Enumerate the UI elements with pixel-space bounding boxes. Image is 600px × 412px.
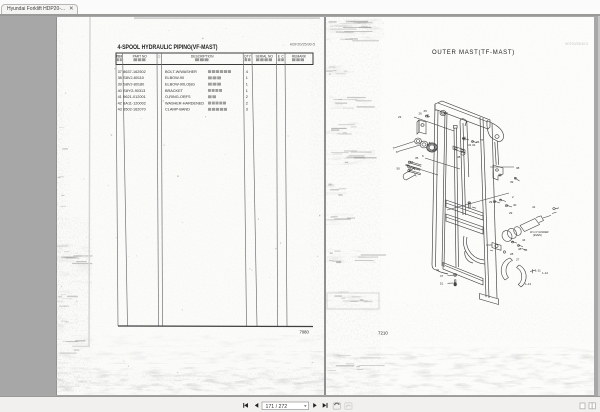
- svg-text:41: 41: [118, 95, 122, 99]
- svg-text:2: 2: [246, 95, 248, 99]
- svg-text:BOLT-W/WASHER: BOLT-W/WASHER: [165, 70, 197, 74]
- svg-text:28: 28: [510, 252, 514, 256]
- svg-text:7210: 7210: [378, 331, 388, 336]
- svg-text:EC: EC: [278, 55, 285, 59]
- svg-text:29: 29: [509, 211, 513, 215]
- svg-text:37: 37: [480, 138, 484, 142]
- svg-text:29: 29: [489, 200, 493, 204]
- svg-text:25: 25: [424, 109, 428, 113]
- svg-text:S8VJ-80110: S8VJ-80110: [123, 76, 144, 80]
- svg-text:1-12: 1-12: [542, 271, 548, 275]
- svg-text:43: 43: [118, 108, 122, 112]
- svg-text:ELBOW-90: ELBOW-90: [165, 76, 184, 80]
- svg-text:1: 1: [246, 76, 248, 80]
- svg-text:BRACKET: BRACKET: [165, 89, 184, 93]
- svg-text:33: 33: [408, 167, 412, 171]
- svg-text:3: 3: [246, 108, 248, 112]
- svg-text:S8YG-90313: S8YG-90313: [123, 89, 145, 93]
- svg-text:1-11: 1-11: [535, 269, 541, 273]
- svg-text:41: 41: [532, 205, 536, 209]
- svg-text:HDF20/25/30-5: HDF20/25/30-5: [290, 43, 315, 47]
- svg-text:39: 39: [510, 180, 514, 184]
- svg-text:4-SPOOL HYDRAULIC PIPING(VF-MA: 4-SPOOL HYDRAULIC PIPING(VF-MAST): [118, 44, 218, 51]
- svg-text:51: 51: [440, 282, 444, 286]
- svg-text:9621-012001: 9621-012001: [123, 95, 145, 99]
- svg-text:23: 23: [398, 115, 402, 119]
- svg-text:47: 47: [440, 274, 444, 278]
- svg-text:ITEM: ITEM: [116, 55, 122, 59]
- svg-text:QTY: QTY: [244, 55, 252, 59]
- svg-text:WASHER-HARDENED: WASHER-HARDENED: [165, 101, 204, 105]
- svg-text:REMARK: REMARK: [292, 55, 307, 59]
- svg-text:CLAMP-BAND: CLAMP-BAND: [165, 108, 190, 112]
- svg-text:38: 38: [516, 166, 520, 170]
- svg-text:8502-162070: 8502-162070: [123, 108, 145, 112]
- svg-text:HDF20/25/30-5: HDF20/25/30-5: [565, 42, 588, 46]
- svg-text:O-RING-ORFS: O-RING-ORFS: [165, 95, 191, 99]
- svg-text:42: 42: [118, 101, 122, 105]
- svg-text:34: 34: [410, 160, 414, 164]
- svg-text:PART NO: PART NO: [133, 55, 148, 59]
- svg-text:DESCRIPTION: DESCRIPTION: [191, 55, 214, 59]
- svg-text:38: 38: [118, 76, 122, 80]
- svg-text:Ⓘ: Ⓘ: [158, 54, 161, 58]
- svg-text:8637-162502: 8637-162502: [123, 70, 145, 74]
- svg-text:37: 37: [118, 70, 122, 74]
- svg-text:(EVEN): (EVEN): [533, 233, 542, 237]
- svg-text:40: 40: [118, 89, 122, 93]
- svg-text:S8VJ-80180: S8VJ-80180: [123, 83, 144, 87]
- svg-text:OUTER MAST(TF-MAST): OUTER MAST(TF-MAST): [432, 50, 515, 56]
- svg-text:26: 26: [419, 112, 423, 116]
- svg-text:7080: 7080: [300, 330, 310, 335]
- svg-text:27: 27: [516, 258, 520, 262]
- svg-text:ELBOW-90LONG: ELBOW-90LONG: [165, 83, 195, 87]
- svg-text:171 / 272: 171 / 272: [266, 404, 288, 410]
- svg-text:38: 38: [457, 155, 461, 159]
- svg-text:1: 1: [246, 83, 248, 87]
- svg-text:1: 1: [246, 89, 248, 93]
- svg-text:4: 4: [246, 70, 248, 74]
- svg-text:40: 40: [513, 203, 517, 207]
- svg-text:48: 48: [518, 247, 522, 251]
- svg-text:1-13: 1-13: [525, 282, 531, 286]
- svg-text:50: 50: [397, 167, 401, 171]
- svg-text:39: 39: [118, 83, 122, 87]
- svg-text:SERIAL NO: SERIAL NO: [255, 55, 273, 59]
- svg-text:8A11-120002: 8A11-120002: [123, 101, 146, 105]
- svg-text:2: 2: [246, 101, 248, 105]
- svg-text:45: 45: [524, 248, 528, 252]
- svg-text:44: 44: [522, 238, 526, 242]
- svg-text:35: 35: [415, 156, 419, 160]
